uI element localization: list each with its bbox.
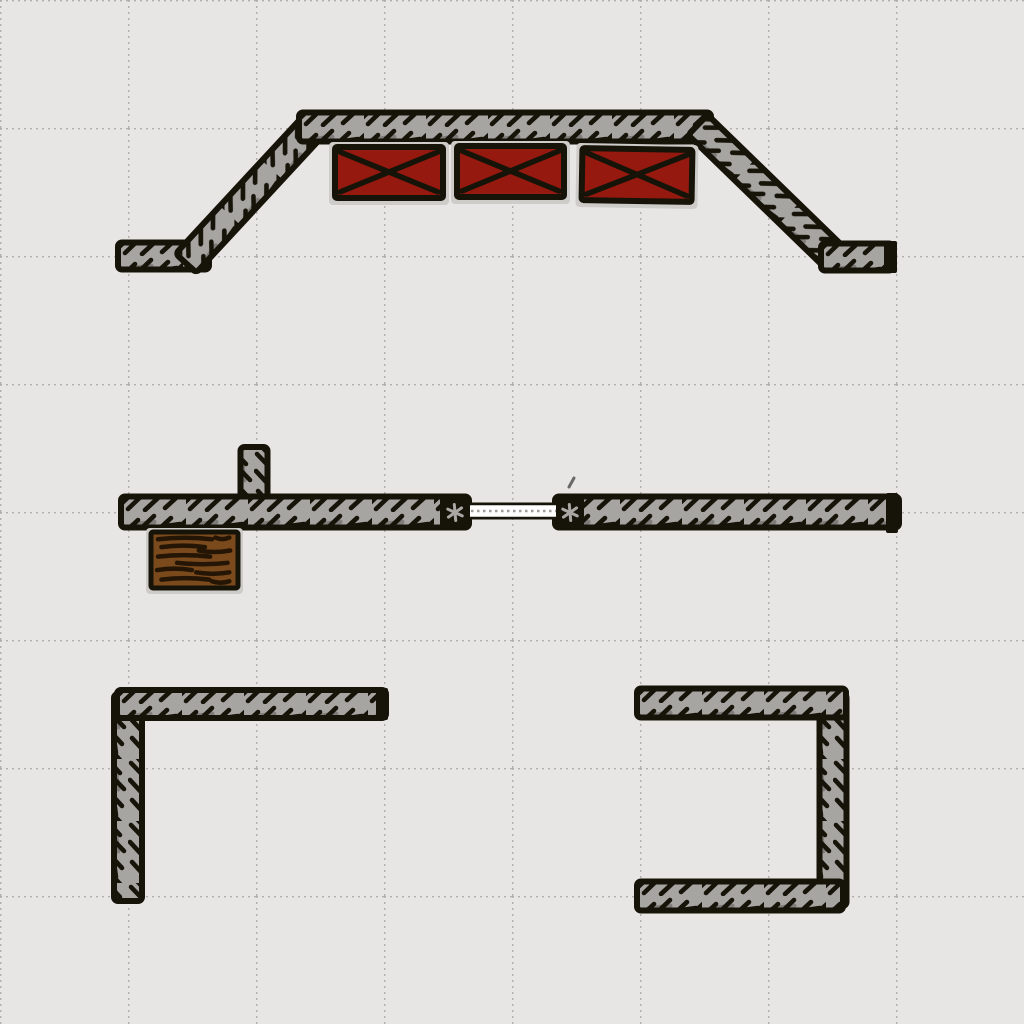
game-stage — [0, 0, 1024, 1024]
wood-log-crate[interactable] — [146, 528, 243, 594]
middle-right-end-cap — [886, 493, 898, 533]
middle-left-joint-cap — [440, 497, 470, 528]
red-crate-3[interactable] — [575, 143, 698, 209]
bridge-right-end-cap — [884, 241, 897, 273]
bottom-right-bottom-beam — [637, 882, 843, 911]
bridge-right-stub — [821, 244, 893, 271]
bottom-left-beam-end-cap — [376, 688, 388, 720]
bridge-top-beam — [299, 113, 711, 142]
game-scene-canvas[interactable] — [0, 0, 1024, 1024]
red-crate-1[interactable] — [329, 142, 449, 205]
middle-left-beam — [121, 497, 469, 528]
bottom-left-vertical-beam — [114, 694, 142, 901]
middle-right-joint-cap — [556, 497, 584, 528]
middle-right-beam — [555, 497, 899, 528]
bottom-left-horizontal-beam — [117, 690, 386, 718]
red-crate-2[interactable] — [451, 141, 570, 204]
bottom-right-top-beam — [637, 689, 846, 718]
bottom-right-vertical-beam — [820, 694, 847, 906]
